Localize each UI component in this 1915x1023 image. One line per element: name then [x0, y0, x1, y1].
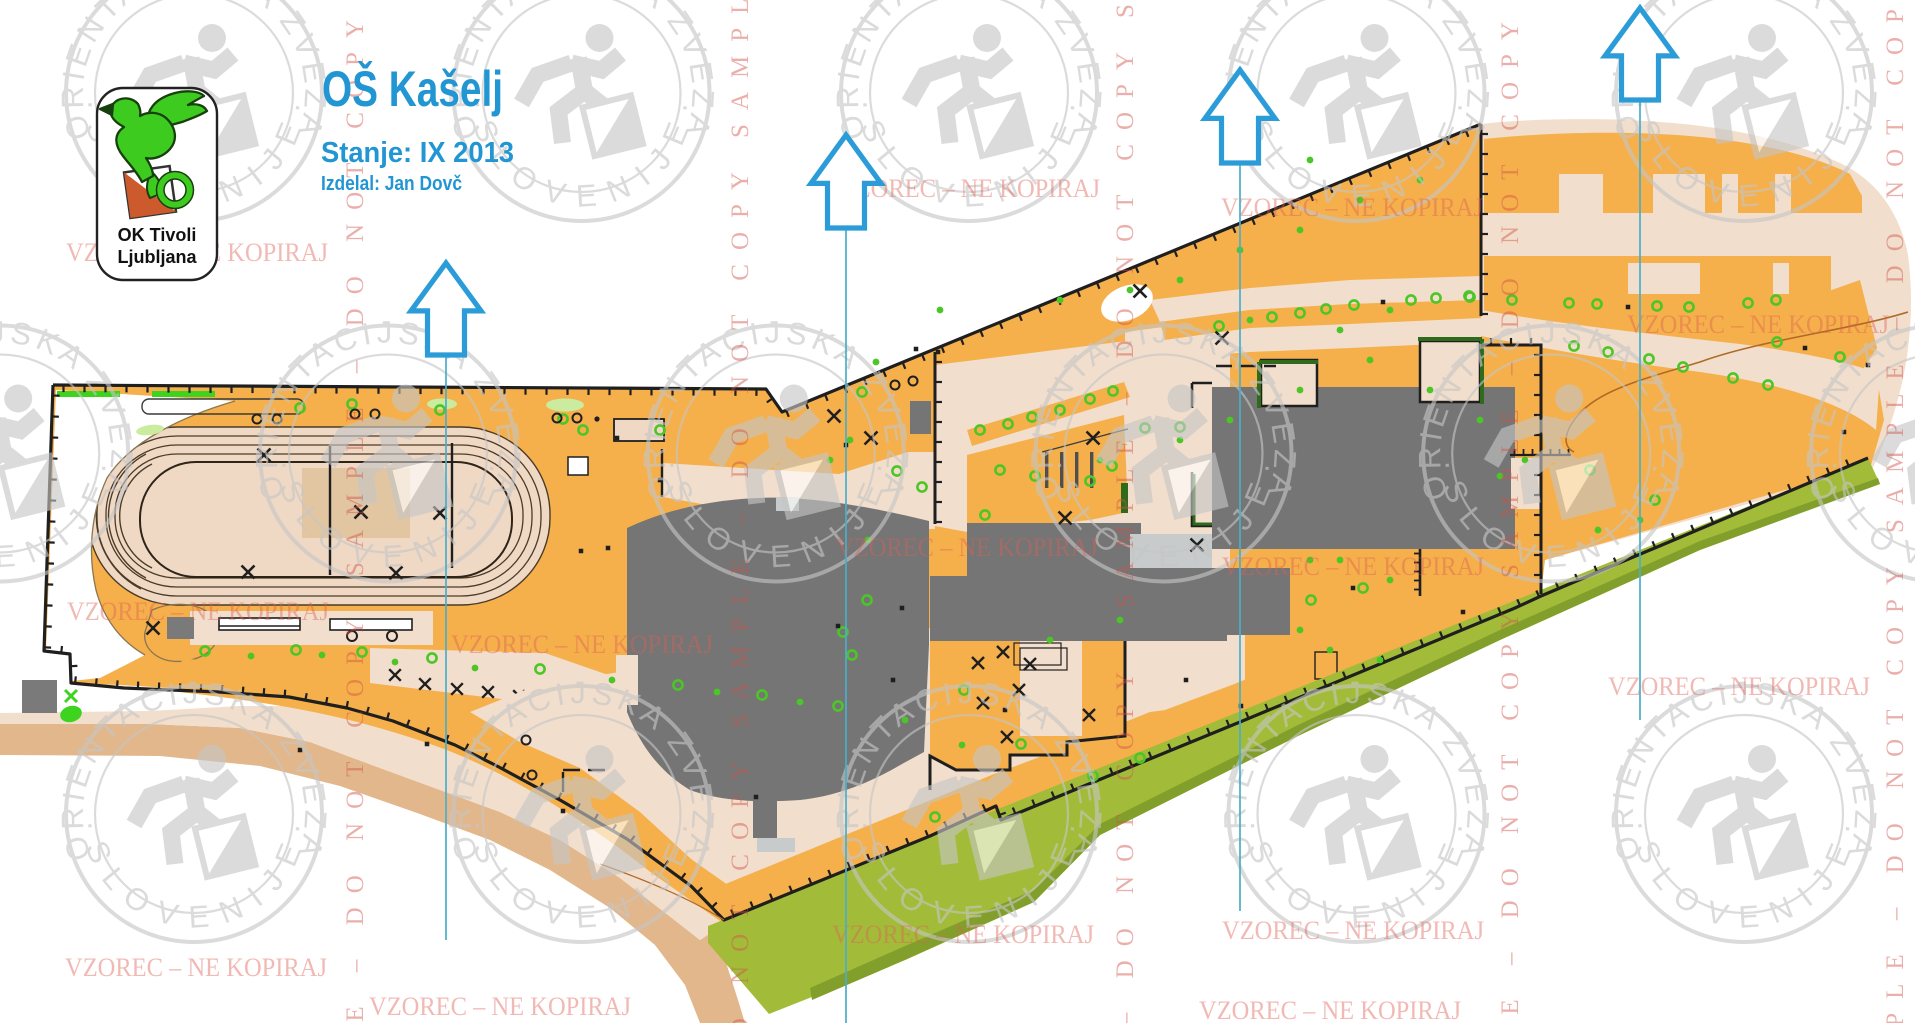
svg-text:SAMPLE – DO NOT COPY: SAMPLE – DO NOT COPY: [1497, 612, 1524, 1023]
svg-text:VZOREC – NE KOPIRAJ: VZOREC – NE KOPIRAJ: [836, 533, 1098, 562]
svg-text:VZOREC – NE KOPIRAJ: VZOREC – NE KOPIRAJ: [1608, 672, 1870, 701]
svg-text:VZOREC – NE KOPIRAJ: VZOREC – NE KOPIRAJ: [1221, 193, 1483, 222]
svg-text:VZOREC – NE KOPIRAJ: VZOREC – NE KOPIRAJ: [451, 630, 713, 659]
svg-text:VZOREC – NE KOPIRAJ: VZOREC – NE KOPIRAJ: [1627, 310, 1889, 339]
svg-text:VZOREC – NE KOPIRAJ: VZOREC – NE KOPIRAJ: [1199, 996, 1461, 1023]
svg-text:VZOREC – NE KOPIRAJ: VZOREC – NE KOPIRAJ: [1222, 916, 1484, 945]
svg-text:OK Tivoli: OK Tivoli: [118, 225, 197, 245]
svg-text:Stanje: IX 2013: Stanje: IX 2013: [321, 137, 514, 169]
svg-text:OŠ Kašelj: OŠ Kašelj: [322, 60, 503, 117]
svg-text:Izdelal: Jan Dovč: Izdelal: Jan Dovč: [321, 173, 462, 195]
svg-text:SAMPLE – DO NOT COPY: SAMPLE – DO NOT COPY: [1882, 0, 1909, 533]
svg-text:Ljubljana: Ljubljana: [117, 247, 197, 267]
svg-text:VZOREC – NE KOPIRAJ: VZOREC – NE KOPIRAJ: [832, 920, 1094, 949]
svg-text:VZOREC – NE KOPIRAJ: VZOREC – NE KOPIRAJ: [65, 953, 327, 982]
svg-text:VZOREC – NE KOPIRAJ: VZOREC – NE KOPIRAJ: [369, 992, 631, 1021]
svg-text:VZOREC – NE KOPIRAJ: VZOREC – NE KOPIRAJ: [67, 597, 329, 626]
svg-text:VZOREC – NE KOPIRAJ: VZOREC – NE KOPIRAJ: [1222, 552, 1484, 581]
